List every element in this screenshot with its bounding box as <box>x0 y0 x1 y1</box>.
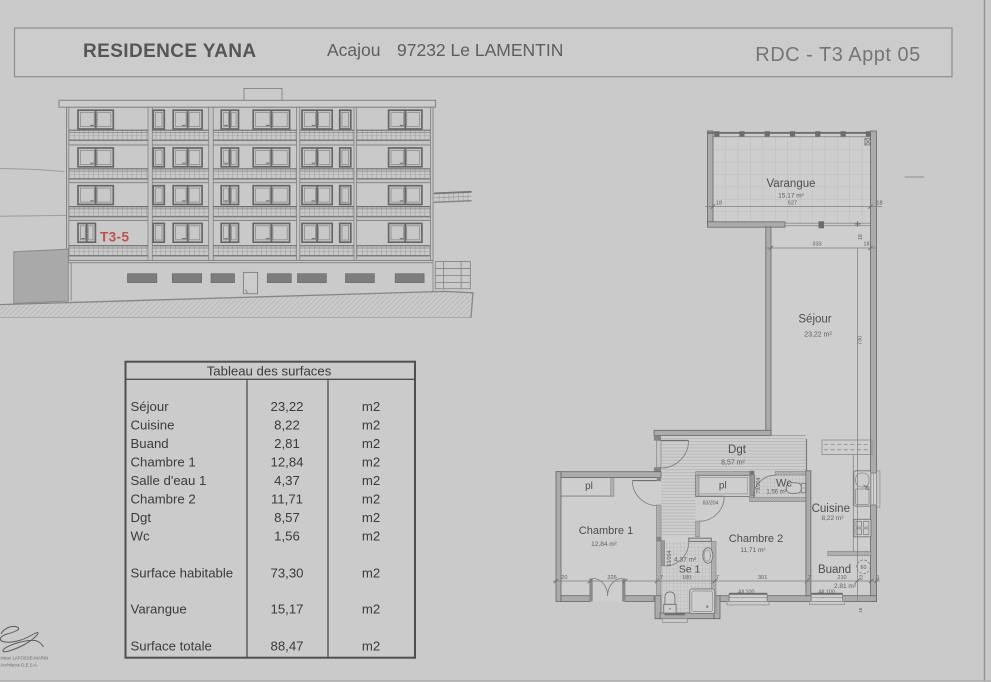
svg-text:20: 20 <box>561 575 567 581</box>
svg-text:97232 Le LAMENTIN: 97232 Le LAMENTIN <box>397 40 563 60</box>
svg-text:1,56 m²: 1,56 m² <box>766 490 786 496</box>
svg-text:63/204: 63/204 <box>667 551 673 567</box>
svg-text:Chambre 2: Chambre 2 <box>131 492 196 507</box>
svg-text:83/204: 83/204 <box>703 501 719 507</box>
svg-text:18: 18 <box>716 200 722 206</box>
svg-text:m2: m2 <box>362 455 380 470</box>
svg-text:Séjour: Séjour <box>798 314 831 326</box>
svg-text:210: 210 <box>837 575 846 581</box>
svg-text:m2: m2 <box>362 639 380 654</box>
svg-text:Salle d'eau 1: Salle d'eau 1 <box>131 473 207 488</box>
svg-text:Wc: Wc <box>131 529 150 544</box>
svg-text:1,56: 1,56 <box>274 529 300 544</box>
svg-text:301: 301 <box>758 575 767 581</box>
svg-text:Chambre 1: Chambre 1 <box>579 525 633 537</box>
svg-text:m2: m2 <box>362 473 380 488</box>
svg-text:333: 333 <box>812 242 821 248</box>
svg-text:m2: m2 <box>362 418 380 433</box>
svg-text:Wc: Wc <box>776 478 792 490</box>
svg-text:Se 1: Se 1 <box>679 564 701 576</box>
svg-text:60: 60 <box>861 565 867 571</box>
svg-text:Buand: Buand <box>131 436 169 451</box>
svg-text:Varangue: Varangue <box>766 178 815 190</box>
svg-text:2,81 m²: 2,81 m² <box>834 583 857 590</box>
svg-text:Surface totale: Surface totale <box>131 639 212 654</box>
svg-text:Dgt: Dgt <box>728 444 747 456</box>
svg-text:8,22 m²: 8,22 m² <box>821 515 844 522</box>
svg-text:Dgt: Dgt <box>131 510 152 525</box>
svg-text:8,57: 8,57 <box>274 510 300 525</box>
svg-text:18: 18 <box>858 234 864 240</box>
svg-text:m2: m2 <box>362 436 380 451</box>
svg-text:m2: m2 <box>362 602 380 617</box>
svg-text:Architecte D.E.S.A.: Architecte D.E.S.A. <box>1 663 39 668</box>
svg-text:1: 1 <box>876 575 879 581</box>
svg-text:527: 527 <box>788 200 797 206</box>
svg-text:18: 18 <box>858 607 864 613</box>
svg-text:15,17 m²: 15,17 m² <box>778 193 804 200</box>
svg-text:180: 180 <box>682 575 691 581</box>
svg-text:326: 326 <box>607 575 616 581</box>
svg-text:Varangue: Varangue <box>131 602 187 617</box>
svg-text:m2: m2 <box>362 492 380 507</box>
svg-text:All 100: All 100 <box>738 590 754 596</box>
svg-text:7: 7 <box>716 575 719 581</box>
svg-text:m2: m2 <box>362 566 380 581</box>
svg-text:RESIDENCE YANA: RESIDENCE YANA <box>83 41 256 62</box>
svg-text:Tableau des surfaces: Tableau des surfaces <box>207 363 332 378</box>
svg-text:73,30: 73,30 <box>270 566 303 581</box>
svg-text:Cuisine: Cuisine <box>812 503 850 515</box>
svg-text:pl: pl <box>585 481 593 492</box>
svg-text:m2: m2 <box>362 399 380 414</box>
svg-text:8,57 m²: 8,57 m² <box>721 460 745 467</box>
svg-text:All 100: All 100 <box>818 590 834 596</box>
svg-text:63: 63 <box>859 574 865 580</box>
svg-text:Surface habitable: Surface habitable <box>131 566 234 581</box>
svg-text:79/204: 79/204 <box>756 478 762 494</box>
svg-text:m2: m2 <box>362 529 380 544</box>
svg-text:Chambre 2: Chambre 2 <box>729 533 783 545</box>
svg-text:730: 730 <box>858 336 864 345</box>
svg-text:pl: pl <box>719 481 727 492</box>
svg-text:7: 7 <box>808 575 811 581</box>
svg-text:8,22: 8,22 <box>274 418 300 433</box>
svg-text:4,37 m²: 4,37 m² <box>674 557 697 564</box>
svg-text:m2: m2 <box>362 510 380 525</box>
svg-text:Séjour: Séjour <box>131 399 170 414</box>
svg-text:15,17: 15,17 <box>270 602 303 617</box>
svg-text:23,22: 23,22 <box>270 399 303 414</box>
svg-text:2,81: 2,81 <box>274 436 300 451</box>
svg-text:RDC - T3 Appt 05: RDC - T3 Appt 05 <box>755 44 920 66</box>
svg-text:12,84: 12,84 <box>270 455 303 470</box>
svg-text:18: 18 <box>863 242 869 248</box>
svg-text:Cuisine: Cuisine <box>131 418 175 433</box>
svg-text:18: 18 <box>876 200 882 206</box>
svg-text:4,37: 4,37 <box>274 473 300 488</box>
svg-text:11,71: 11,71 <box>271 492 303 507</box>
svg-text:T3-5: T3-5 <box>100 230 129 245</box>
svg-text:Acajou: Acajou <box>327 40 381 60</box>
svg-text:23,22 m²: 23,22 m² <box>804 332 832 339</box>
svg-text:7: 7 <box>660 575 663 581</box>
svg-text:88,47: 88,47 <box>270 639 303 654</box>
svg-text:Chambre 1: Chambre 1 <box>131 455 196 470</box>
svg-text:ristan LAFOSSE-MARIN: ristan LAFOSSE-MARIN <box>1 656 49 661</box>
svg-text:11,71 m²: 11,71 m² <box>740 547 766 554</box>
svg-text:12,84 m²: 12,84 m² <box>591 541 617 548</box>
